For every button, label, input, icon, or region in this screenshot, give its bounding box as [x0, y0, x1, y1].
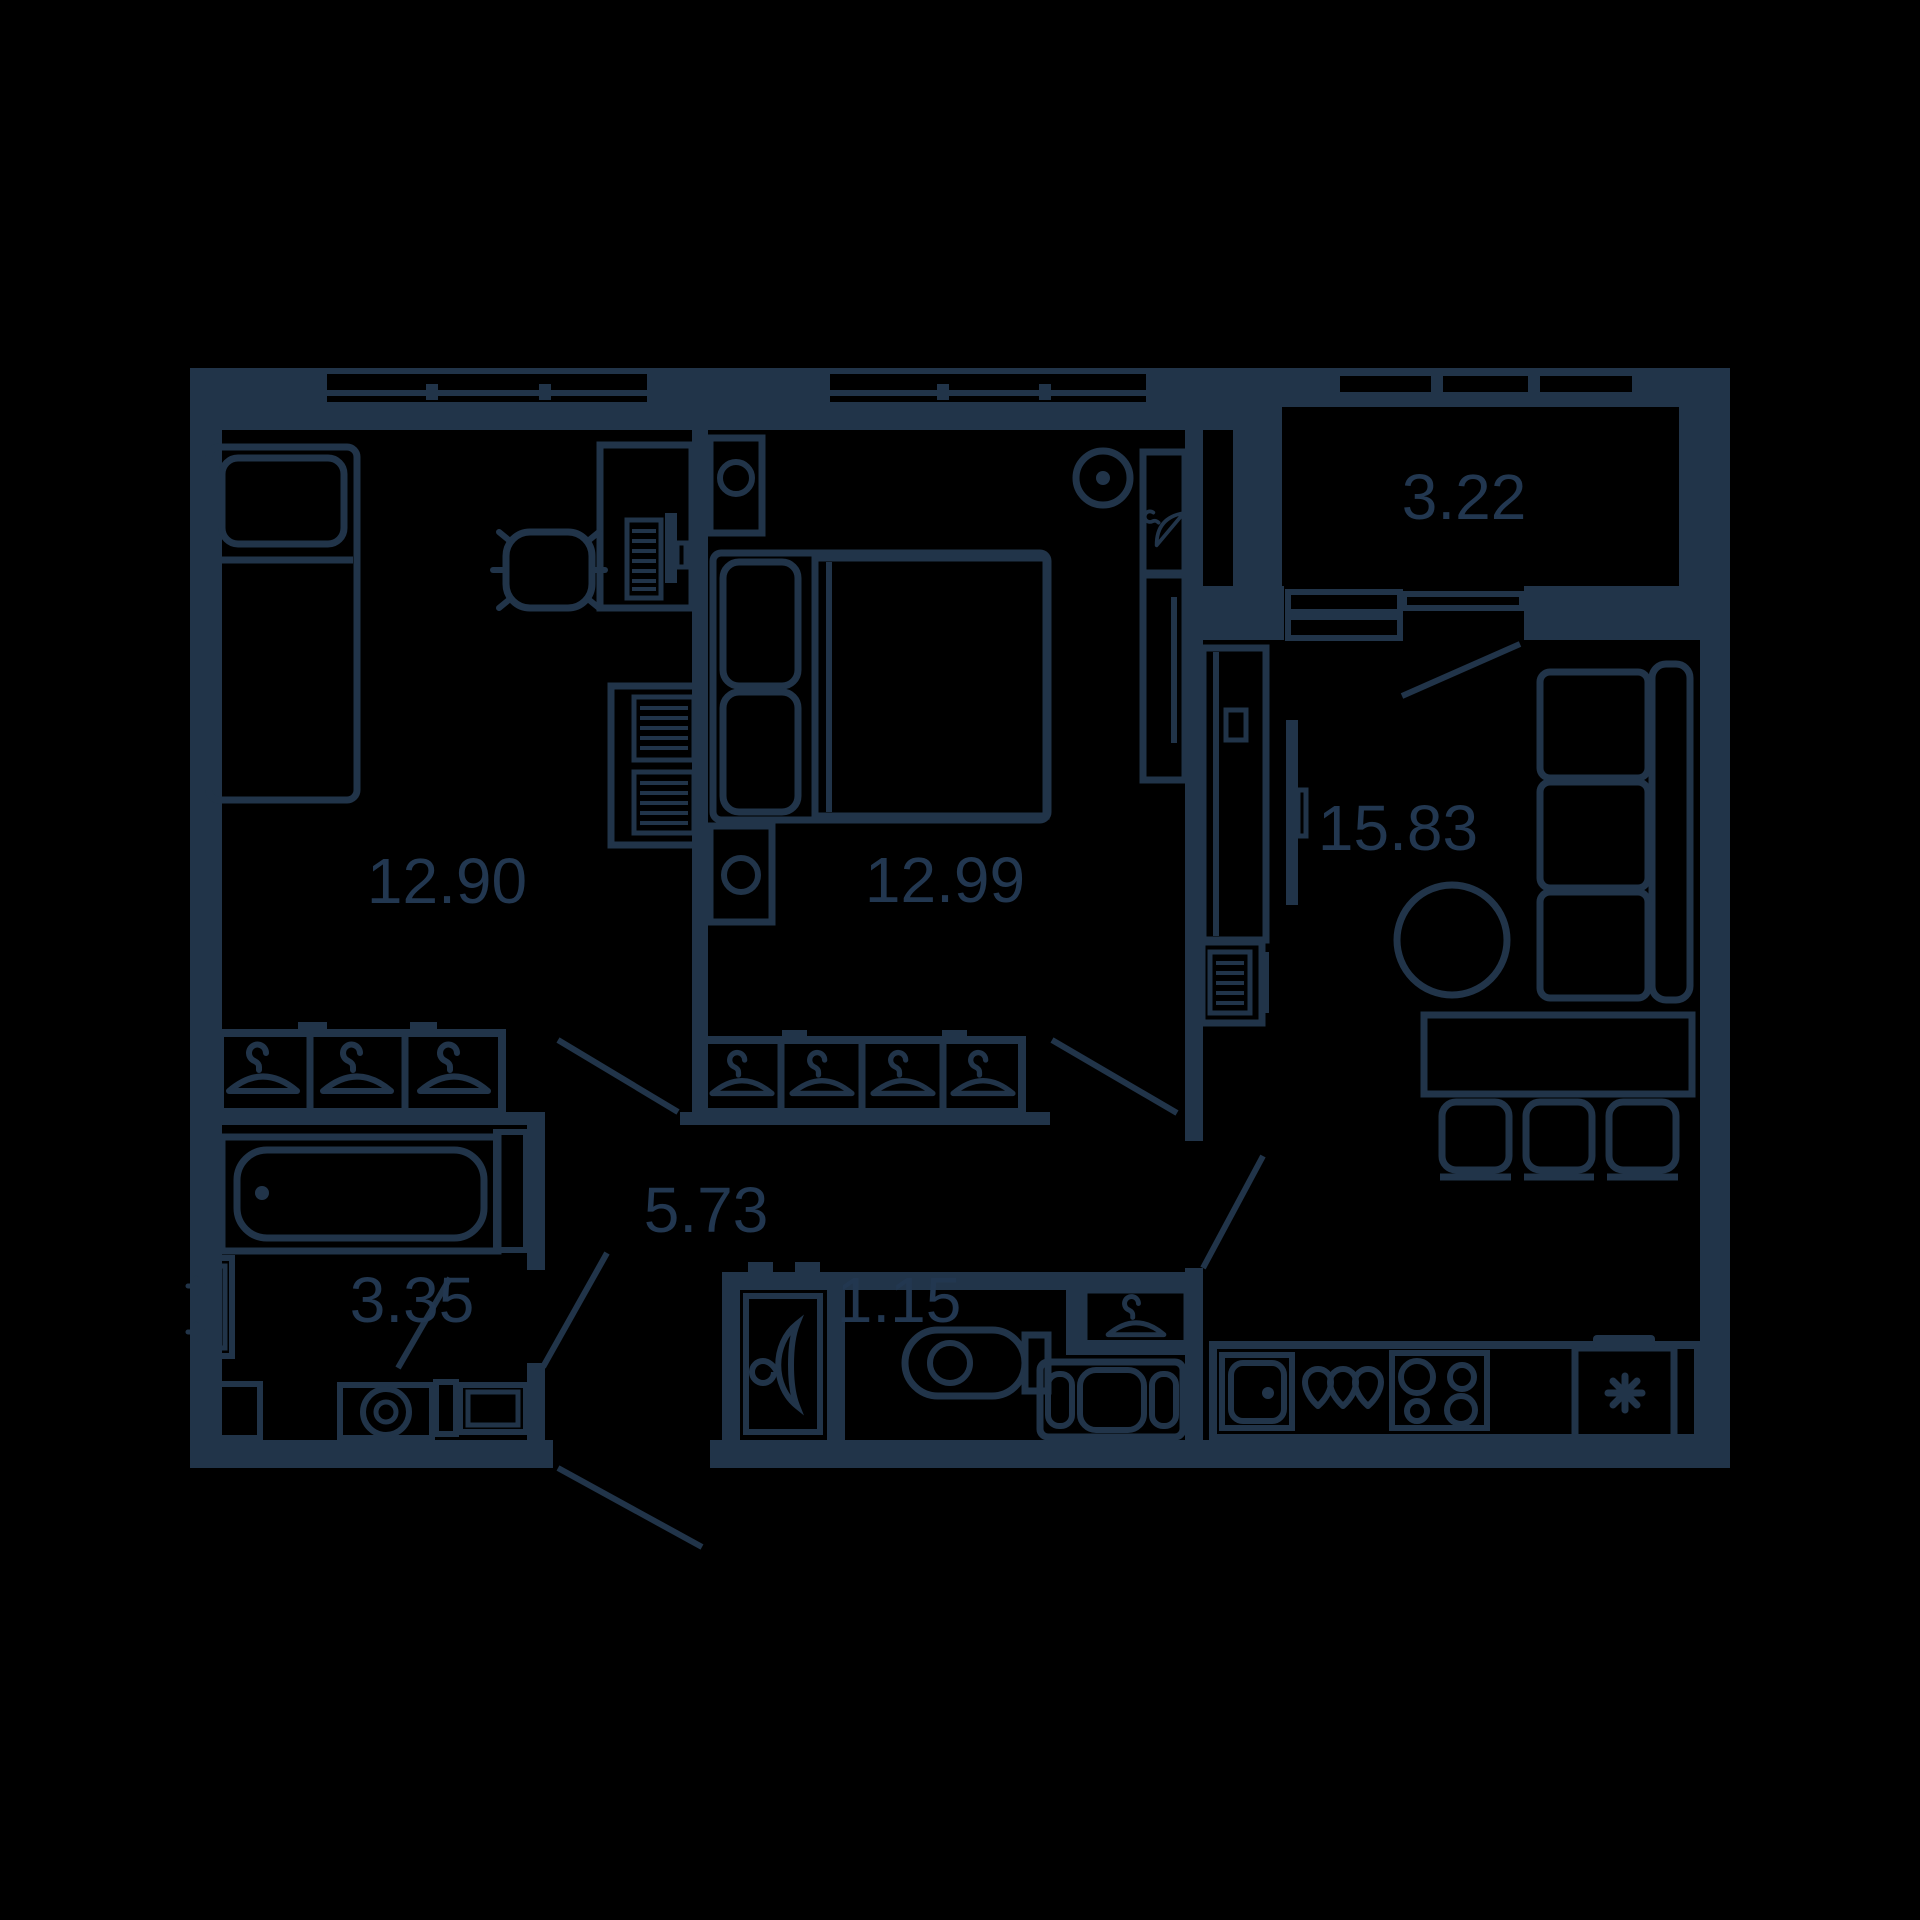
- hanger-icon: [953, 1053, 1013, 1094]
- wall-balcony-partition-left: [1203, 586, 1284, 640]
- wall-tab: [795, 1262, 820, 1272]
- balcony-window-sill-inner: [1288, 617, 1400, 638]
- snowflake-icon: [1608, 1376, 1642, 1410]
- hanger-icon: [1108, 1297, 1164, 1335]
- wall-balcony-right: [1679, 368, 1730, 640]
- wall-balcony-partition-right: [1524, 586, 1679, 640]
- bedroom-1-area-label: 12.90: [367, 845, 527, 917]
- wall-bottom: [190, 1440, 1730, 1468]
- keyboard-icon: [627, 520, 661, 598]
- door-swing-bedroom-1: [558, 1040, 678, 1112]
- slim-cabinet-icon: [1143, 575, 1185, 780]
- drain-board-icon: [1305, 1369, 1381, 1406]
- hallway-area-label: 5.73: [644, 1174, 769, 1246]
- wall-right: [1700, 640, 1730, 1468]
- drawer-unit-icon: [611, 686, 700, 845]
- room-bedroom-1: 12.90: [209, 445, 700, 1112]
- floor-plan: 12.90: [0, 0, 1920, 1920]
- bench-icon: [1040, 1362, 1183, 1437]
- door-swing-entrance-outer: [558, 1468, 702, 1547]
- door-swing-bedroom-2: [1052, 1040, 1177, 1113]
- washbasin-icon: [746, 1296, 820, 1432]
- room-bedroom-2: 12.99: [703, 438, 1185, 1113]
- stool-icon: [1607, 1102, 1678, 1177]
- dresser-icon: [1202, 942, 1266, 1023]
- hanger-icon: [712, 1053, 772, 1094]
- fridge-icon: [1575, 1335, 1674, 1438]
- room-balcony: 3.22: [1402, 461, 1527, 696]
- stove-icon: [1392, 1353, 1487, 1428]
- room-bathroom: 3.35: [188, 1132, 526, 1438]
- coat-nook-icon: [1084, 1290, 1187, 1345]
- stool-icon: [1524, 1102, 1594, 1177]
- sofa-icon: [1540, 664, 1690, 1000]
- cabinet-icon: [436, 1382, 526, 1434]
- bathroom-area-label: 3.35: [350, 1264, 475, 1336]
- wall-bathroom-east: [527, 1125, 545, 1270]
- bathtub-icon: [222, 1132, 526, 1251]
- hanger-icon: [323, 1045, 391, 1091]
- room-living-kitchen: 15.83: [1202, 648, 1698, 1438]
- wall-bathroom-east-stub: [527, 1363, 545, 1440]
- hanger-icon: [792, 1053, 852, 1094]
- desk-icon: [600, 445, 692, 608]
- hanger-icon: [420, 1045, 488, 1091]
- entrance-opening: [553, 1440, 710, 1468]
- nightstand-icon: [710, 826, 772, 922]
- wardrobe-icon: [220, 1022, 502, 1112]
- window-bedroom-1: [327, 374, 647, 402]
- hanger-icon: [873, 1053, 933, 1094]
- ceiling-light-icon: [1076, 451, 1130, 505]
- floor-plan-canvas: 12.90: [0, 0, 1920, 1920]
- washing-machine-icon: [340, 1385, 432, 1438]
- bedroom-2-area-label: 12.99: [865, 844, 1025, 916]
- single-bed-icon: [209, 447, 357, 800]
- door-swing-balcony: [1402, 644, 1520, 696]
- wardrobe-tall-icon: [1203, 648, 1266, 940]
- door-swing-living: [1203, 1156, 1263, 1268]
- nightstand-icon: [710, 438, 762, 533]
- balcony-area-label: 3.22: [1402, 461, 1527, 533]
- wall-tab: [748, 1262, 773, 1272]
- kitchen-counter: [1213, 1335, 1698, 1438]
- sink-icon: [1222, 1355, 1292, 1428]
- slim-wardrobe-icon: [1135, 452, 1185, 573]
- dining-table-icon: [1424, 1015, 1692, 1094]
- round-table-icon: [1397, 885, 1507, 995]
- wc-area-label: 1.15: [837, 1264, 962, 1336]
- living-area-label: 15.83: [1318, 792, 1478, 864]
- double-bed-icon: [713, 553, 1048, 820]
- window-balcony: [1340, 374, 1632, 394]
- balcony-window-sill-outer: [1288, 592, 1400, 612]
- tv-icon: [1286, 720, 1306, 905]
- wardrobe-icon: [703, 1030, 1022, 1112]
- wall-wc-left: [722, 1290, 740, 1440]
- window-bedroom-2: [830, 374, 1146, 402]
- monitor-icon: [665, 513, 686, 583]
- hanger-icon: [229, 1045, 297, 1091]
- stool-icon: [1440, 1102, 1511, 1177]
- balcony-door-lintel: [1404, 594, 1522, 608]
- office-chair-icon: [493, 532, 605, 608]
- toilet-icon: [905, 1330, 1048, 1396]
- door-swing-entrance-inner: [543, 1253, 607, 1367]
